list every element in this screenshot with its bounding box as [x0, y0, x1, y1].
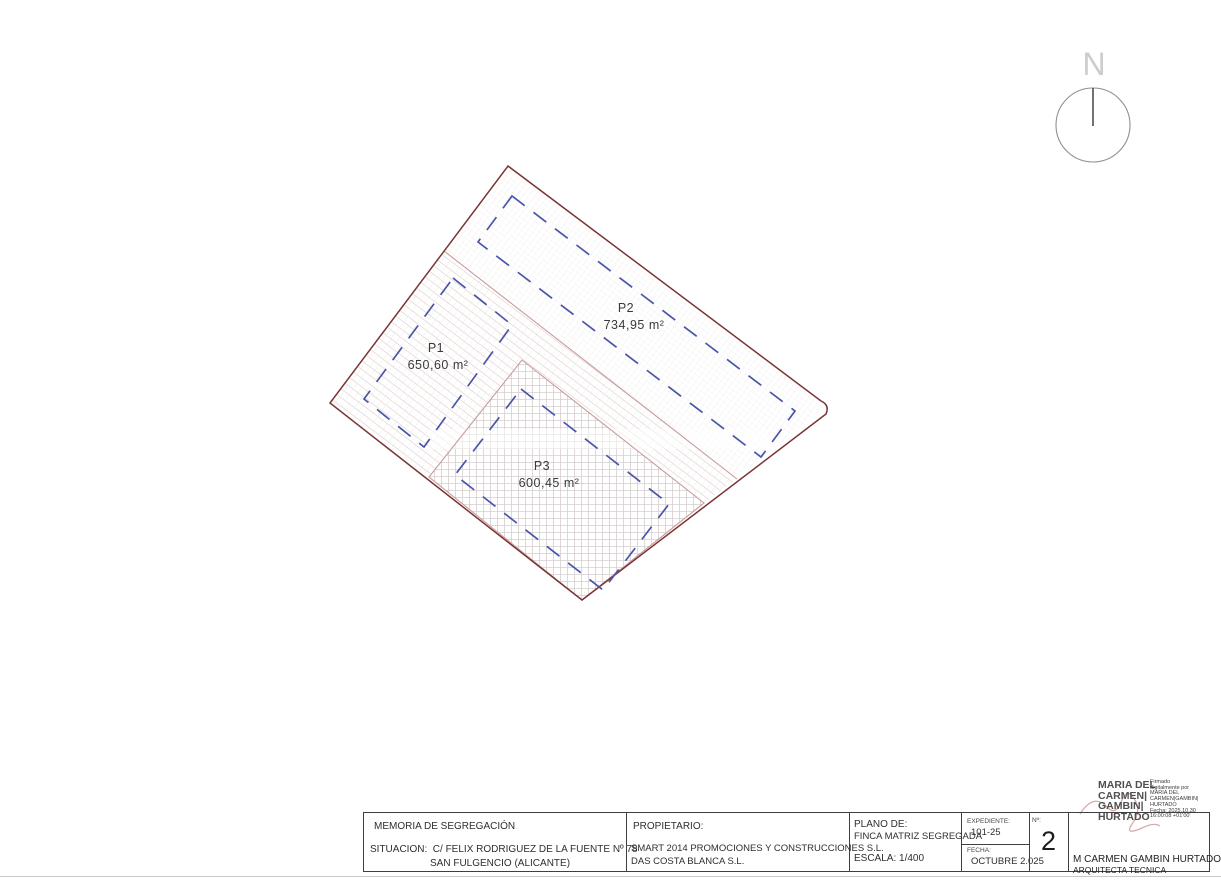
signature-name-line: MARIA DEL [1098, 780, 1150, 791]
situacion-address: C/ FELIX RODRIGUEZ DE LA FUENTE Nº 78 [433, 844, 638, 855]
site-plan-drawing: P1 650,60 m² P2 734,95 m² P3 600,45 m² N [0, 0, 1221, 887]
parcel-p3-area: 600,45 m² [519, 476, 580, 490]
plano-label: PLANO DE: [854, 819, 907, 830]
project-title: MEMORIA DE SEGREGACIÓN [374, 821, 515, 832]
page-bottom-edge [0, 876, 1221, 877]
parcel-p2-area: 734,95 m² [604, 318, 665, 332]
parcel-p1-label: P1 [428, 341, 444, 355]
titleblock-divider [849, 813, 850, 871]
parcel-p2-label: P2 [618, 301, 634, 315]
owner-line2: DAS COSTA BLANCA S.L. [631, 856, 744, 867]
watermark-band [428, 429, 772, 449]
plano-escala: ESCALA: 1/400 [854, 853, 924, 864]
parcel-p1-area: 650,60 m² [408, 358, 469, 372]
fecha-label: FECHA: [967, 847, 991, 854]
fecha-value: OCTUBRE 2.025 [971, 856, 1044, 867]
titleblock-divider [626, 813, 627, 871]
sheet-number: 2 [1041, 826, 1056, 857]
north-label: N [1082, 46, 1105, 82]
situacion-label: SITUACION: [370, 844, 427, 855]
owner-line1: SMART 2014 PROMOCIONES Y CONSTRUCCIONES … [631, 843, 884, 854]
author-title: ARQUITECTA TECNICA [1073, 865, 1166, 875]
expediente-value: 101-25 [971, 827, 1001, 838]
titleblock-divider [1068, 813, 1069, 871]
titleblock-divider [961, 844, 1029, 845]
owner-label: PROPIETARIO: [633, 821, 703, 832]
project-city: SAN FULGENCIO (ALICANTE) [430, 858, 570, 869]
expediente-label: EXPEDIENTE: [967, 818, 1010, 825]
plano-name: FINCA MATRIZ SEGREGADA [854, 831, 982, 842]
titleblock-divider [961, 813, 962, 871]
project-situacion: SITUACION: C/ FELIX RODRIGUEZ DE LA FUEN… [370, 844, 638, 855]
title-block: MEMORIA DE SEGREGACIÓN SITUACION: C/ FEL… [363, 812, 1210, 872]
plan-sheet: P1 650,60 m² P2 734,95 m² P3 600,45 m² N… [0, 0, 1221, 887]
north-compass: N [1056, 46, 1130, 162]
parcel-p3-label: P3 [534, 459, 550, 473]
sheet-number-label: Nº: [1032, 817, 1041, 824]
author-name: M CARMEN GAMBIN HURTADO [1073, 854, 1221, 865]
